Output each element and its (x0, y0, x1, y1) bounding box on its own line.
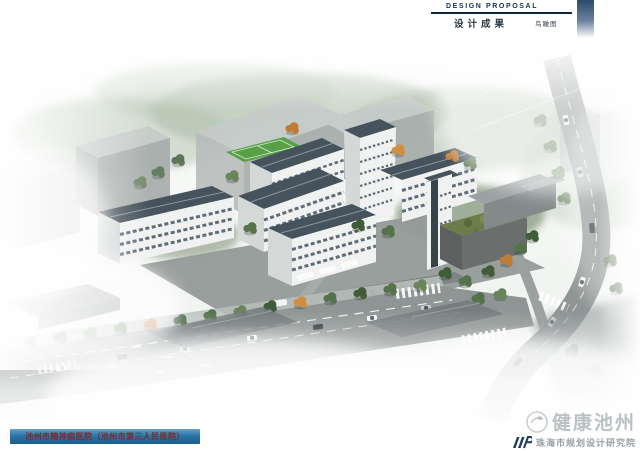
design-proposal-page: DESIGN PROPOSAL 设计成果 鸟瞰图 池州市精神病医院（池州市第三人… (0, 0, 640, 453)
watermark-brand-text: 健康池州 (552, 408, 636, 435)
project-title-text: 池州市精神病医院（池州市第三人民医院） (25, 431, 185, 442)
header-gradient-bar (577, 0, 594, 38)
health-chizhou-logo-icon (525, 410, 549, 434)
kicker-text: DESIGN PROPOSAL (446, 3, 538, 10)
institute-logo-icon (512, 436, 532, 449)
watermark: 健康池州 珠海市规划设计研究院 (486, 408, 636, 449)
title-rule (431, 12, 572, 14)
watermark-institute-text: 珠海市规划设计研究院 (536, 436, 636, 449)
aerial-rendering (0, 0, 640, 453)
view-caption: 鸟瞰图 (535, 18, 558, 28)
page-title: 设计成果 (454, 16, 508, 30)
project-title-bar: 池州市精神病医院（池州市第三人民医院） (10, 429, 200, 444)
